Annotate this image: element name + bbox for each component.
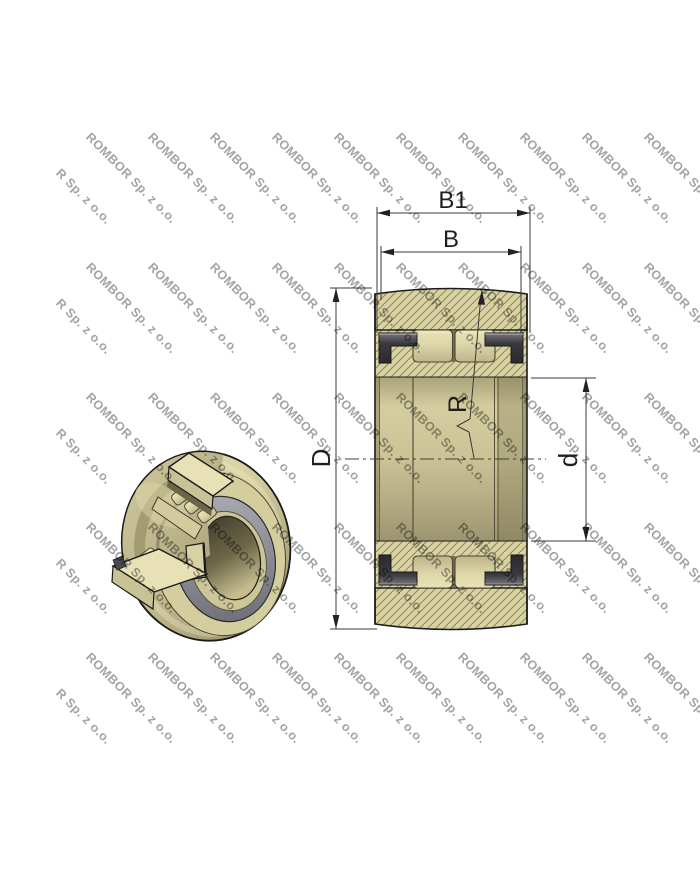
dim-label-b1: B1 [438, 187, 467, 214]
roller-row-bottom [413, 556, 495, 588]
dim-label-b: B [443, 226, 459, 253]
dim-label-d-outer: D [306, 449, 336, 468]
outer-ring-section-bottom [375, 588, 527, 630]
dim-label-r: R [444, 395, 472, 413]
roller-row-top [413, 330, 495, 362]
dimension-d-outer: D [306, 288, 377, 629]
technical-drawing: B1 B D d [0, 0, 700, 869]
dim-label-d-bore: d [553, 453, 583, 467]
roller [413, 556, 453, 588]
outer-ring-section-top [375, 289, 527, 331]
iso-view [107, 438, 305, 654]
page: B1 B D d [0, 0, 700, 869]
roller [413, 330, 453, 362]
cross-section-view [345, 289, 546, 630]
